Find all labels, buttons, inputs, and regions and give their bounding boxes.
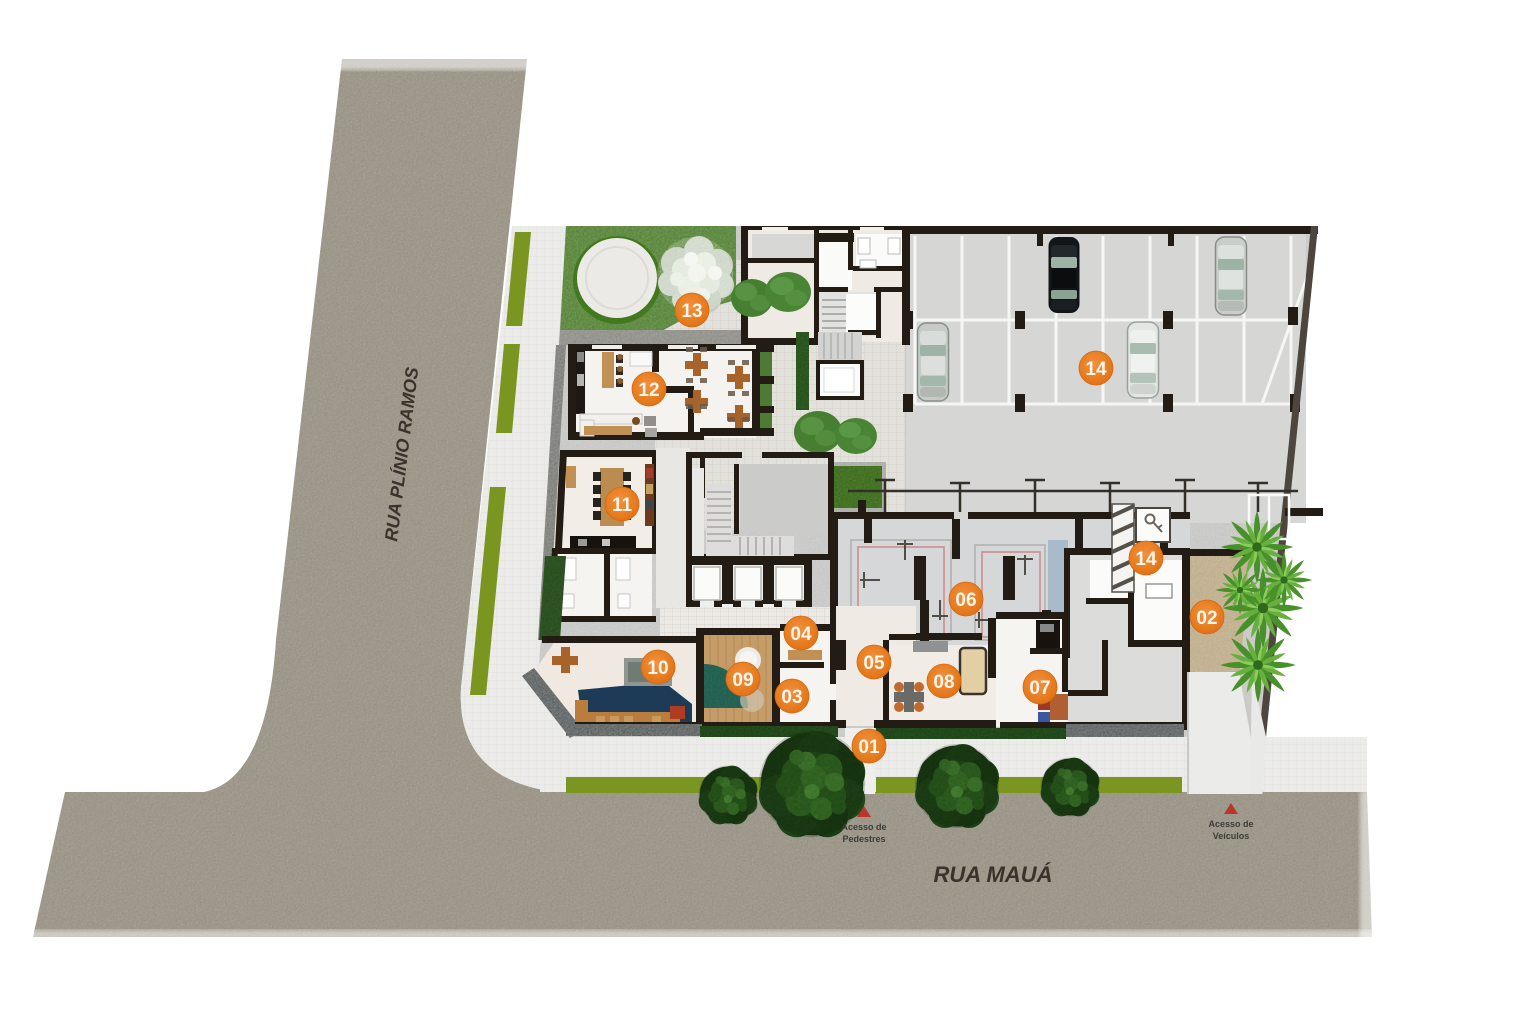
- svg-text:01: 01: [858, 737, 880, 758]
- svg-text:02: 02: [1196, 608, 1217, 629]
- svg-text:13: 13: [681, 301, 702, 322]
- svg-text:08: 08: [933, 672, 954, 693]
- svg-text:11: 11: [612, 495, 633, 516]
- svg-text:Acesso de: Acesso de: [841, 822, 886, 832]
- svg-text:Veículos: Veículos: [1213, 831, 1250, 841]
- svg-text:14: 14: [1085, 359, 1107, 380]
- svg-text:12: 12: [638, 380, 659, 401]
- svg-text:05: 05: [863, 653, 885, 674]
- svg-text:14: 14: [1135, 549, 1157, 570]
- svg-text:RUA MAUÁ: RUA MAUÁ: [934, 862, 1053, 887]
- svg-text:Acesso de: Acesso de: [1208, 819, 1253, 829]
- svg-text:04: 04: [790, 624, 812, 645]
- svg-text:07: 07: [1029, 678, 1050, 699]
- svg-text:10: 10: [647, 658, 668, 679]
- svg-text:06: 06: [955, 590, 976, 611]
- svg-text:03: 03: [781, 687, 802, 708]
- svg-text:09: 09: [732, 670, 753, 691]
- svg-text:Pedestres: Pedestres: [842, 834, 885, 844]
